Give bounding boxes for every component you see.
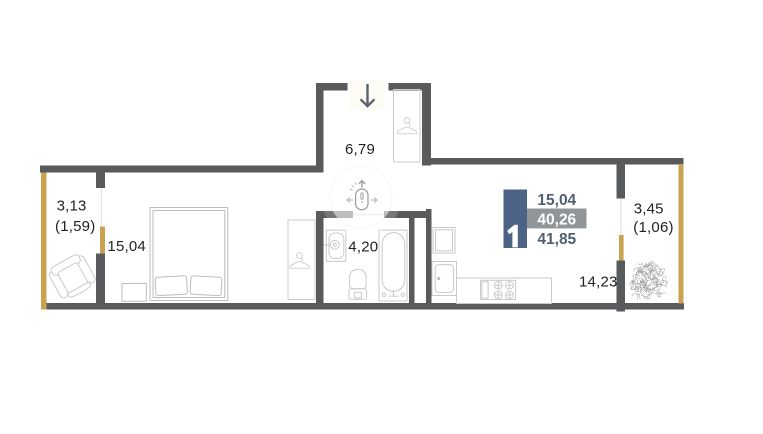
svg-text:4,20: 4,20	[348, 238, 378, 255]
svg-text:41,85: 41,85	[537, 231, 576, 248]
svg-text:(1,06): (1,06)	[633, 219, 673, 236]
svg-text:3,45: 3,45	[634, 201, 664, 218]
svg-text:3,13: 3,13	[57, 198, 87, 215]
svg-text:14,23: 14,23	[579, 274, 618, 291]
svg-text:(1,59): (1,59)	[55, 218, 95, 235]
svg-text:15,04: 15,04	[107, 238, 146, 255]
svg-text:15,04: 15,04	[537, 192, 576, 209]
svg-text:6,79: 6,79	[345, 141, 375, 158]
svg-text:40,26: 40,26	[537, 211, 576, 228]
